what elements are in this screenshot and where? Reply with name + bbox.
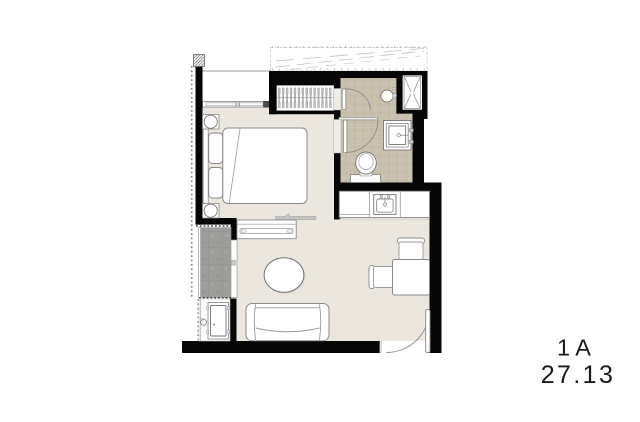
svg-text:27.13: 27.13 — [541, 361, 616, 389]
svg-text:1 A: 1 A — [557, 335, 591, 361]
